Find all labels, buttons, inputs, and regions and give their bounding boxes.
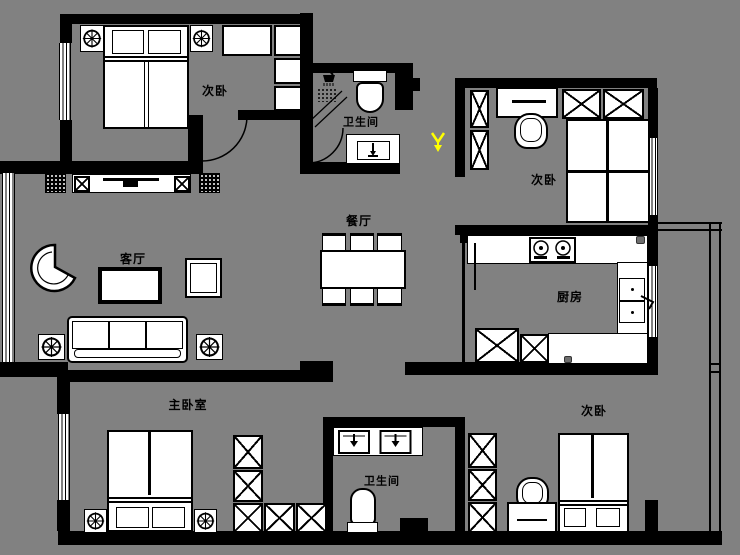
entry-arrow-icon	[432, 133, 444, 152]
faucet-arm	[641, 296, 653, 309]
door-arc	[202, 117, 247, 161]
plan-overlay	[0, 0, 740, 555]
door-arc	[308, 128, 343, 163]
shower-partition	[310, 91, 347, 127]
floor-plan: 次卧 卫生间 客厅 餐厅	[0, 0, 740, 555]
